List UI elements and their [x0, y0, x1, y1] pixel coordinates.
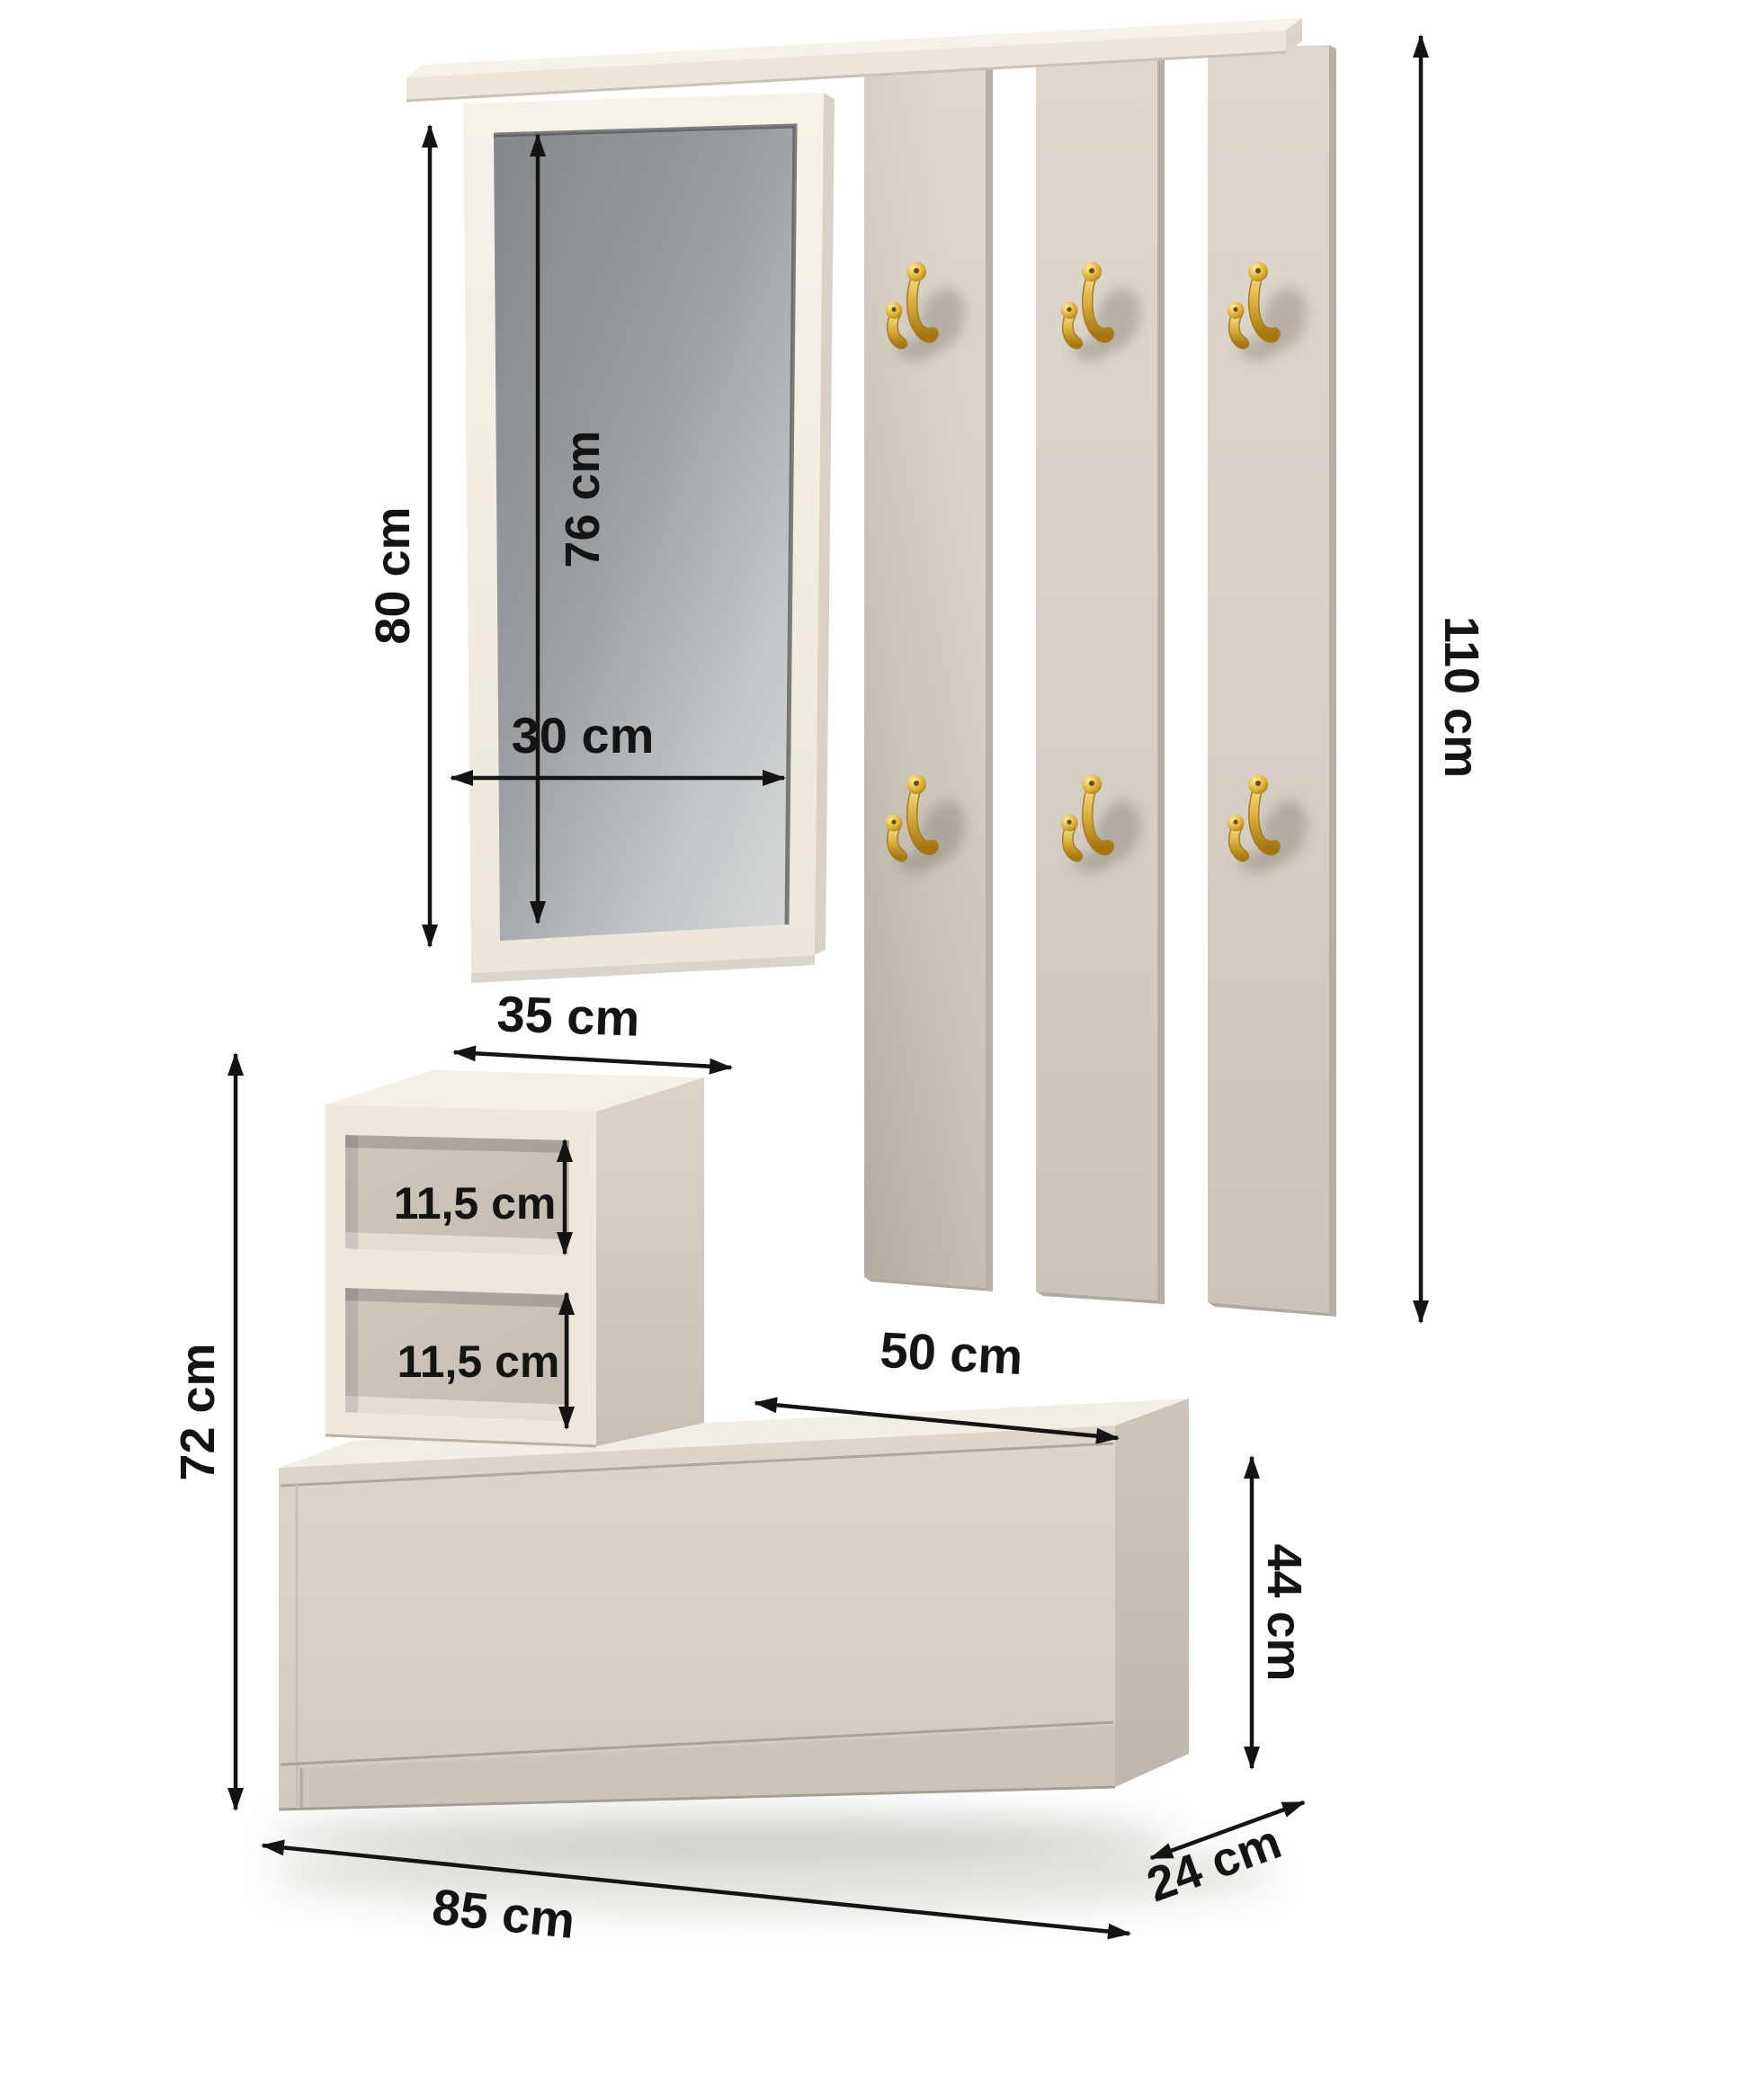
dim-label-mirror-glass-height: 76 cm — [558, 430, 607, 567]
diagram-canvas — [0, 0, 1750, 2100]
mirror — [463, 93, 835, 983]
top-shelf-board — [406, 18, 1302, 101]
coat-panel-3 — [1208, 45, 1336, 1317]
open-shelf-unit — [326, 1070, 704, 1446]
dim-label-mirror-panel-height: 80 cm — [369, 506, 417, 644]
coat-panel-2 — [1036, 50, 1165, 1304]
shoe-bench — [279, 1399, 1189, 1810]
furniture-dimension-diagram: 80 cm 76 cm 30 cm 110 cm 35 cm 11,5 cm 1… — [0, 0, 1750, 2100]
dim-label-coat-panel-height: 110 cm — [1437, 616, 1486, 778]
arrow-shelf-unit-width — [454, 1052, 731, 1068]
dim-label-shelf-compartment-bottom: 11,5 cm — [397, 1339, 560, 1384]
coat-panel-1 — [864, 56, 993, 1291]
dim-label-left-total-height: 72 cm — [174, 1343, 222, 1480]
dim-label-shelf-compartment-top: 11,5 cm — [394, 1181, 557, 1226]
dim-label-mirror-width: 30 cm — [512, 710, 655, 761]
dim-label-bench-height: 44 cm — [1260, 1543, 1308, 1681]
dim-label-shelf-unit-width: 35 cm — [496, 988, 641, 1044]
dim-label-bench-top-width: 50 cm — [879, 1325, 1024, 1382]
